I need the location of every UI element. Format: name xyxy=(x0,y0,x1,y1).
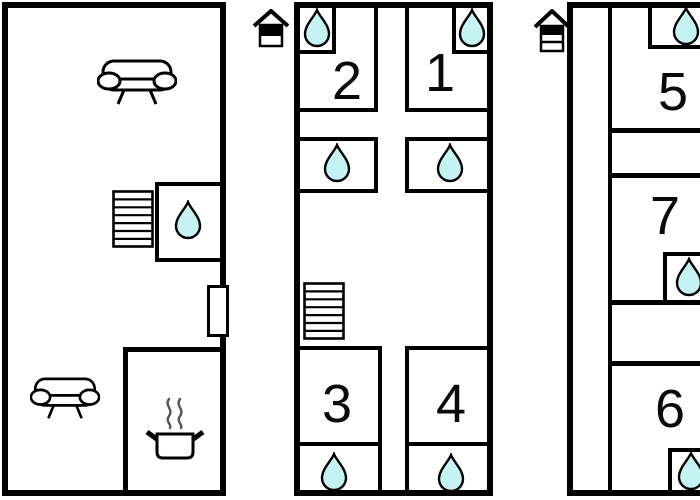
wall xyxy=(409,442,487,446)
wall xyxy=(608,361,700,366)
room-number-3: 3 xyxy=(322,377,352,431)
house-floor-indicator-icon xyxy=(252,9,290,49)
wall xyxy=(300,137,378,141)
wall xyxy=(405,2,409,112)
room-number-1: 1 xyxy=(425,46,455,100)
kitchen-wall xyxy=(123,347,226,352)
water-drop-icon xyxy=(677,451,700,491)
wall xyxy=(648,2,652,49)
bathroom-wall xyxy=(155,182,159,262)
wall xyxy=(300,189,378,193)
wall xyxy=(300,442,378,446)
stairs-icon xyxy=(303,282,345,340)
wall xyxy=(332,2,336,54)
sofa-icon xyxy=(97,59,177,107)
room-number-5: 5 xyxy=(658,65,688,119)
wall xyxy=(663,252,667,304)
wall xyxy=(294,50,336,54)
room-number-6: 6 xyxy=(655,382,685,436)
corridor-wall xyxy=(608,2,612,496)
wall xyxy=(405,189,487,193)
wall xyxy=(374,137,378,193)
window-marker xyxy=(207,285,229,337)
water-drop-icon xyxy=(437,453,465,493)
wall xyxy=(456,50,493,54)
kitchen-wall xyxy=(123,347,128,496)
wall xyxy=(300,346,382,350)
room-number-4: 4 xyxy=(436,377,466,431)
wall xyxy=(378,346,382,496)
wall xyxy=(374,2,378,112)
bathroom-wall xyxy=(155,258,222,262)
wall xyxy=(608,128,700,133)
water-drop-icon xyxy=(303,8,331,48)
water-drop-icon xyxy=(323,143,351,183)
wall xyxy=(405,108,493,112)
sofa-icon xyxy=(30,377,100,421)
water-drop-icon xyxy=(320,452,348,492)
wall xyxy=(405,137,409,193)
wall xyxy=(668,448,672,496)
room-number-2: 2 xyxy=(332,54,362,108)
wall xyxy=(608,300,700,305)
wall xyxy=(608,173,700,178)
wall xyxy=(663,252,700,256)
bathroom-wall xyxy=(155,182,222,186)
water-drop-icon xyxy=(436,143,464,183)
wall xyxy=(405,346,409,496)
cooking-pot-icon xyxy=(143,396,207,460)
wall xyxy=(405,346,487,350)
water-drop-icon xyxy=(458,8,486,48)
wall xyxy=(405,137,487,141)
house-floor-indicator-icon xyxy=(533,9,571,53)
water-drop-icon xyxy=(675,257,700,297)
room-number-7: 7 xyxy=(650,189,680,243)
floorplan: 2 1 3 4 xyxy=(0,0,700,500)
water-drop-icon xyxy=(672,6,700,46)
stairs-icon xyxy=(112,190,154,248)
water-drop-icon xyxy=(174,200,202,240)
